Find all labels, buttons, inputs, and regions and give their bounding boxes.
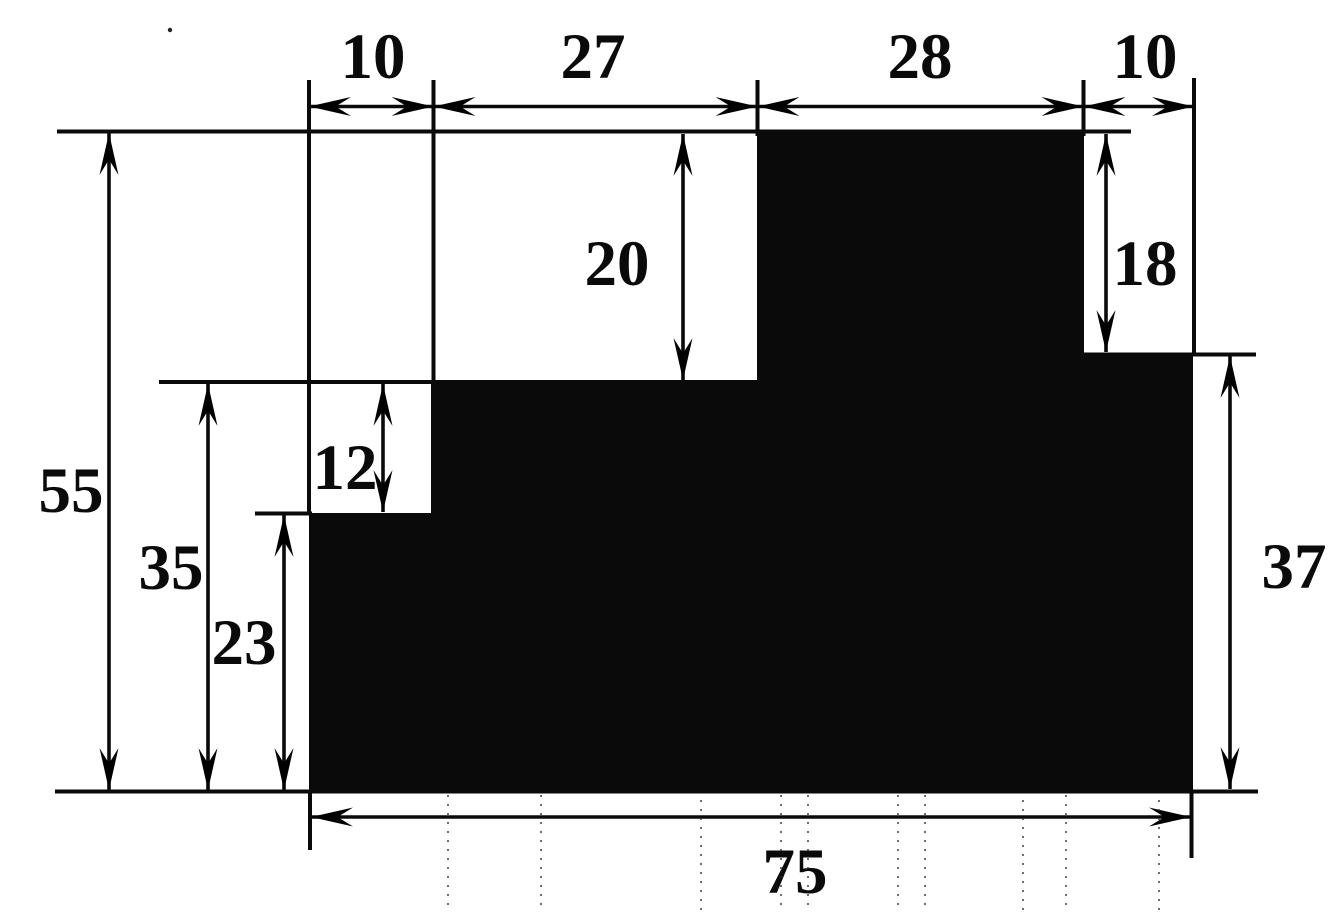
- svg-text:10: 10: [1113, 21, 1178, 93]
- svg-text:10: 10: [341, 21, 406, 93]
- svg-text:28: 28: [888, 21, 953, 93]
- svg-text:23: 23: [212, 607, 277, 679]
- svg-text:75: 75: [763, 836, 828, 908]
- svg-text:27: 27: [561, 21, 626, 93]
- svg-text:18: 18: [1113, 228, 1178, 300]
- svg-text:12: 12: [313, 432, 378, 504]
- svg-text:20: 20: [585, 228, 650, 300]
- svg-text:55: 55: [39, 455, 104, 527]
- svg-text:37: 37: [1262, 531, 1327, 603]
- svg-text:35: 35: [139, 532, 204, 604]
